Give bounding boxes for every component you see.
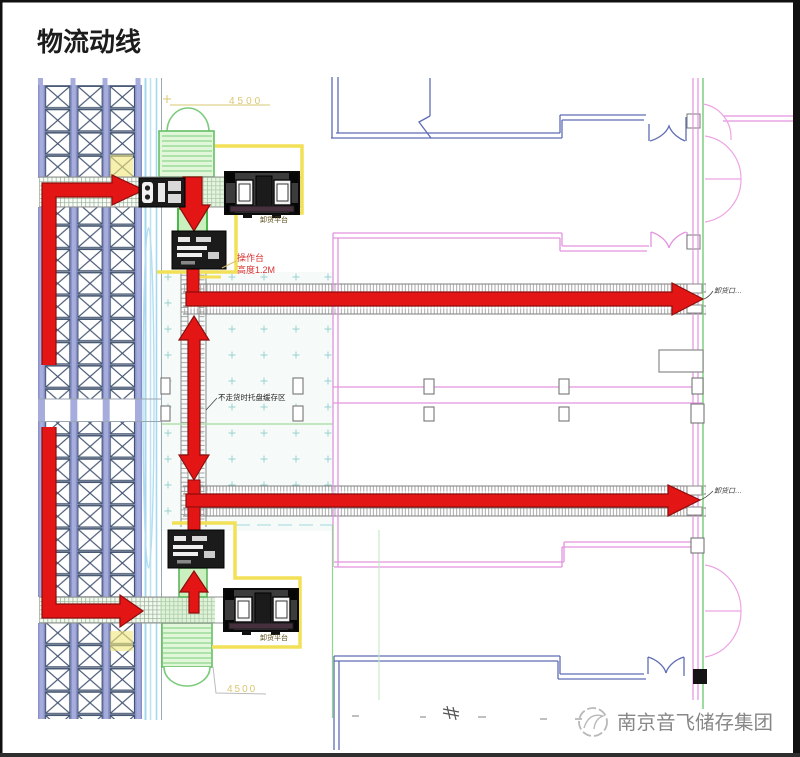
svg-text:卸货口…: 卸货口… bbox=[714, 487, 742, 495]
svg-text:不走货时托盘缓存区: 不走货时托盘缓存区 bbox=[218, 392, 286, 402]
svg-text:高度1.2M: 高度1.2M bbox=[237, 264, 275, 275]
svg-text:物流动线: 物流动线 bbox=[37, 27, 141, 57]
svg-text:卸货口…: 卸货口… bbox=[714, 287, 742, 295]
svg-text:卸货平台: 卸货平台 bbox=[260, 633, 288, 642]
svg-text:南京音飞储存集团: 南京音飞储存集团 bbox=[617, 712, 773, 734]
svg-text:操作台: 操作台 bbox=[237, 252, 264, 263]
svg-text:卸货平台: 卸货平台 bbox=[260, 215, 288, 224]
